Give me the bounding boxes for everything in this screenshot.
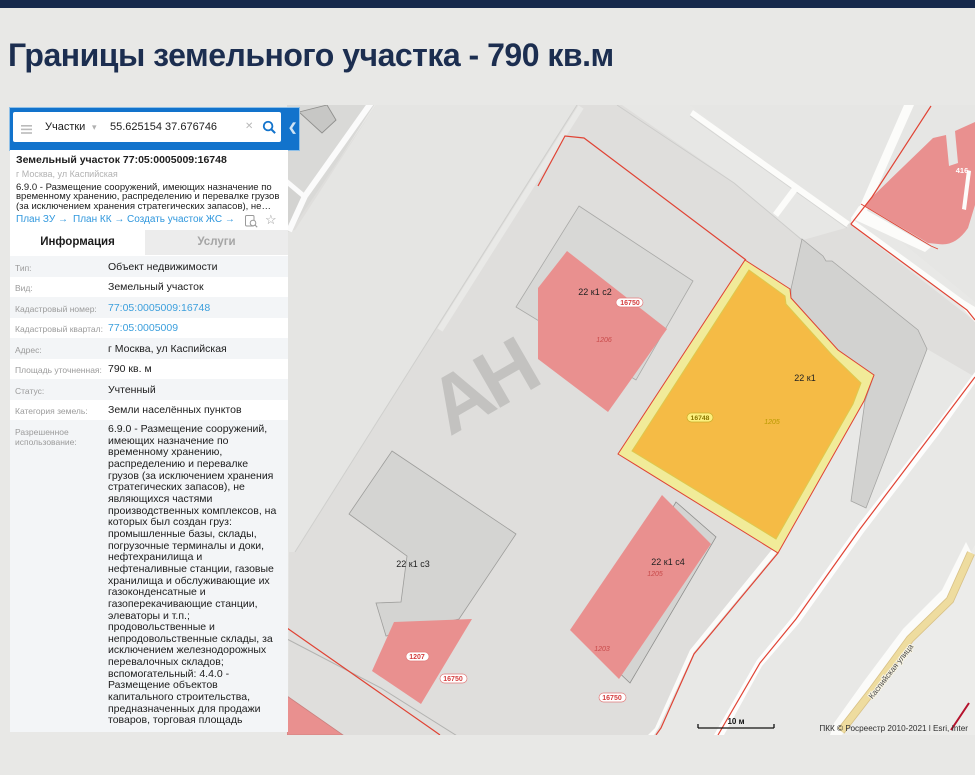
svg-text:16750: 16750	[443, 676, 463, 683]
svg-text:1203: 1203	[594, 646, 610, 653]
svg-text:ПКК © Росреестр 2010-2021 l Es: ПКК © Росреестр 2010-2021 l Esri, Inter	[819, 724, 968, 733]
svg-text:1206: 1206	[596, 337, 612, 344]
svg-text:22 к1 с4: 22 к1 с4	[651, 557, 684, 567]
svg-text:22 к1: 22 к1	[794, 373, 815, 383]
svg-text:16750: 16750	[602, 695, 622, 702]
svg-text:22 к1 с2: 22 к1 с2	[578, 287, 611, 297]
svg-text:10 м: 10 м	[727, 717, 744, 726]
svg-text:1207: 1207	[409, 654, 425, 661]
svg-text:16750: 16750	[620, 300, 640, 307]
svg-text:16748: 16748	[691, 415, 710, 422]
svg-text:22 к1 с3: 22 к1 с3	[396, 559, 429, 569]
svg-text:1205: 1205	[647, 571, 663, 578]
svg-text:1205: 1205	[764, 419, 780, 426]
svg-text:416: 416	[956, 166, 969, 175]
